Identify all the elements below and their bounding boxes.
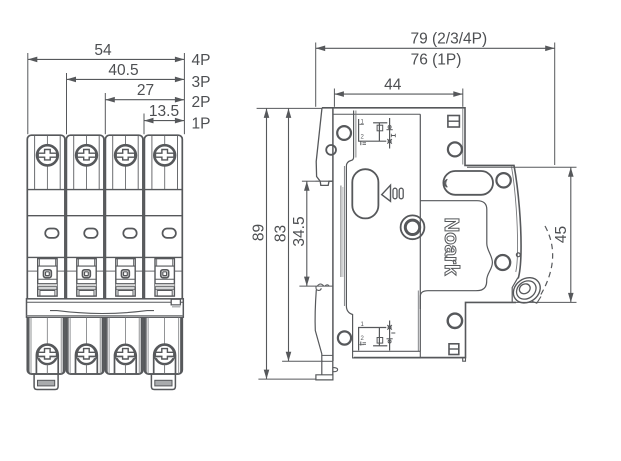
svg-text:27: 27	[137, 82, 154, 99]
svg-text:34.5: 34.5	[291, 216, 308, 246]
svg-text:89: 89	[251, 224, 268, 241]
svg-text:Noark: Noark	[440, 217, 463, 276]
svg-text:1P: 1P	[192, 116, 211, 133]
svg-text:44: 44	[384, 77, 402, 94]
svg-text:2P: 2P	[192, 94, 211, 111]
svg-text:76 (1P): 76 (1P)	[411, 52, 462, 69]
svg-text:45: 45	[553, 226, 570, 243]
svg-text:83: 83	[273, 225, 290, 242]
svg-text:4P: 4P	[192, 52, 211, 69]
svg-text:3P: 3P	[192, 74, 211, 91]
svg-text:40.5: 40.5	[108, 62, 138, 79]
svg-text:13.5: 13.5	[149, 103, 179, 120]
svg-text:54: 54	[94, 42, 112, 59]
svg-text:79 (2/3/4P): 79 (2/3/4P)	[410, 31, 487, 48]
